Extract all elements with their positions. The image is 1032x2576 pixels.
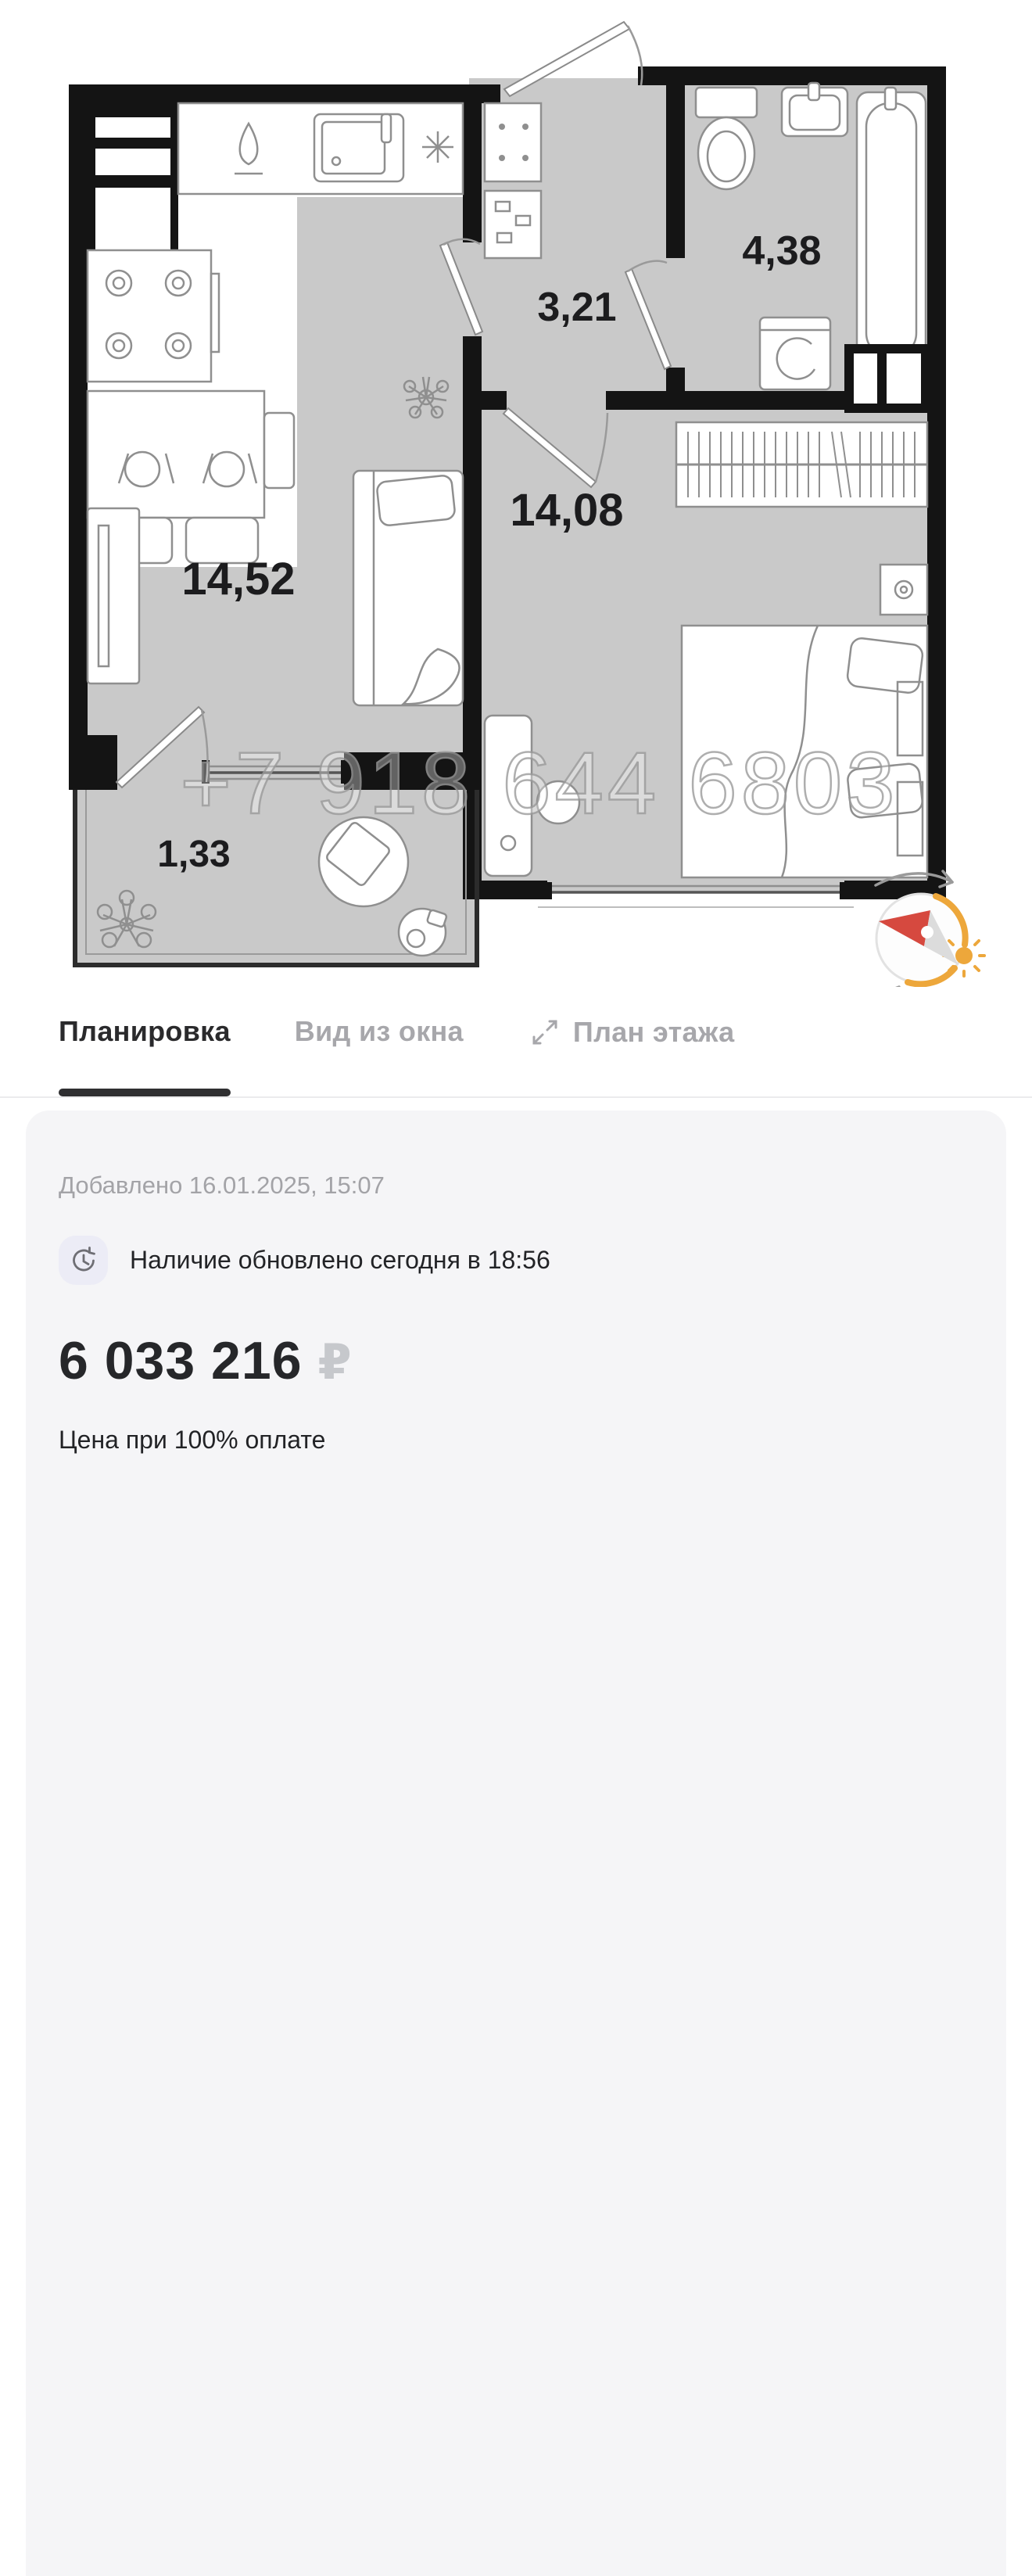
active-tab-underline	[59, 1089, 231, 1096]
tab-plan-etazha[interactable]: План этажа	[528, 1015, 735, 1093]
ruble-currency-sign: ₽	[318, 1333, 352, 1390]
price-note: Цена при 100% оплате	[59, 1426, 973, 1455]
tab-planirovka-label: Планировка	[59, 1015, 231, 1048]
tab-vid-iz-okna[interactable]: Вид из окна	[295, 1015, 464, 1092]
tab-plan-etazha-label: План этажа	[573, 1016, 735, 1049]
availability-text: Наличие обновлено сегодня в 18:56	[130, 1246, 550, 1275]
bathroom-area-label: 4,38	[742, 228, 821, 274]
media-tabs: Планировка Вид из окна План этажа	[0, 987, 1032, 1098]
tab-vid-iz-okna-label: Вид из окна	[295, 1015, 464, 1048]
tab-planirovka[interactable]: Планировка	[59, 1015, 231, 1092]
availability-row: Наличие обновлено сегодня в 18:56	[59, 1236, 973, 1285]
price-value: 6 033 216	[59, 1330, 303, 1391]
hallway-area-label: 3,21	[537, 285, 616, 330]
bedroom-area-label: 14,08	[510, 485, 623, 536]
balcony-area-label: 1,33	[157, 834, 230, 875]
phone-watermark: +7 918 644 6803	[181, 734, 899, 832]
added-date: Добавлено 16.01.2025, 15:07	[59, 1171, 973, 1200]
offer-info-card: Добавлено 16.01.2025, 15:07 Наличие обно…	[26, 1110, 1006, 2576]
living-area-label: 14,52	[181, 554, 295, 605]
floor-plan-image: 14,52 3,21 4,38 14,08 1,33 +7 918 644 68…	[0, 0, 1032, 987]
price-row: 6 033 216 ₽	[59, 1330, 973, 1391]
clock-refresh-icon	[59, 1236, 108, 1285]
floor-plan-viewer[interactable]: 14,52 3,21 4,38 14,08 1,33 +7 918 644 68…	[0, 0, 1032, 987]
hallway-furniture	[485, 103, 541, 258]
expand-icon	[528, 1015, 562, 1049]
bedroom-window	[538, 882, 854, 907]
